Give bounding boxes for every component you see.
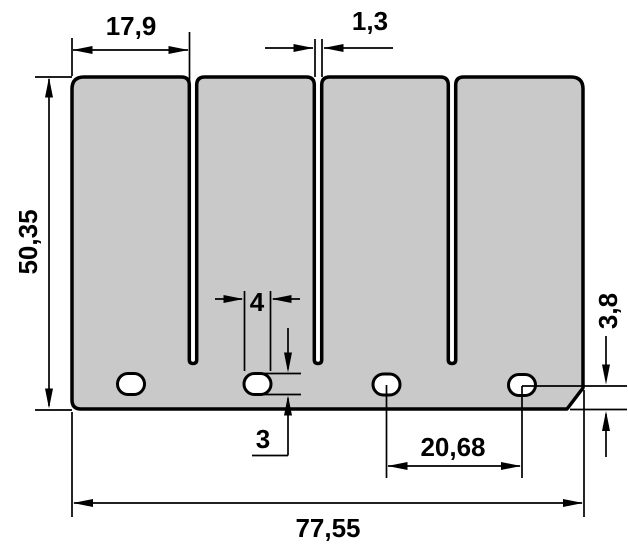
reed-plate (72, 77, 583, 409)
mounting-hole-1 (118, 374, 145, 395)
arrowhead-down (45, 389, 53, 409)
dim-hole-spacing-label: 20,68 (420, 432, 485, 462)
arrowhead-left (388, 462, 408, 470)
arrowhead-up (45, 78, 53, 98)
dim-petal-width-label: 17,9 (106, 11, 157, 41)
dim-overall-width-label: 77,55 (295, 513, 360, 543)
dim-hole-width-label: 4 (250, 287, 265, 317)
arrowhead-left (73, 499, 93, 507)
drawing-canvas: 17,9 1,3 50,35 (0, 0, 628, 549)
dim-hole-height-label: 3 (256, 424, 270, 454)
dimension-overall-height: 50,35 (13, 77, 72, 410)
dim-slot-width-label: 1,3 (352, 6, 388, 36)
plate-outline (72, 77, 583, 409)
arrowhead-right (294, 44, 314, 52)
arrowhead-down (602, 365, 610, 385)
technical-drawing: 17,9 1,3 50,35 (0, 0, 628, 549)
arrowhead-right (563, 499, 583, 507)
arrowhead-right (501, 462, 521, 470)
dim-hole-center-to-bottom-edge-label: 3,8 (593, 293, 623, 329)
mounting-hole-2 (244, 374, 271, 395)
arrowhead-left (73, 46, 93, 54)
dim-overall-height-label: 50,35 (13, 209, 43, 274)
dimension-slot-width: 1,3 (265, 6, 393, 77)
arrowhead-right (169, 46, 189, 54)
arrowhead-left (324, 44, 344, 52)
arrowhead-up (602, 411, 610, 431)
